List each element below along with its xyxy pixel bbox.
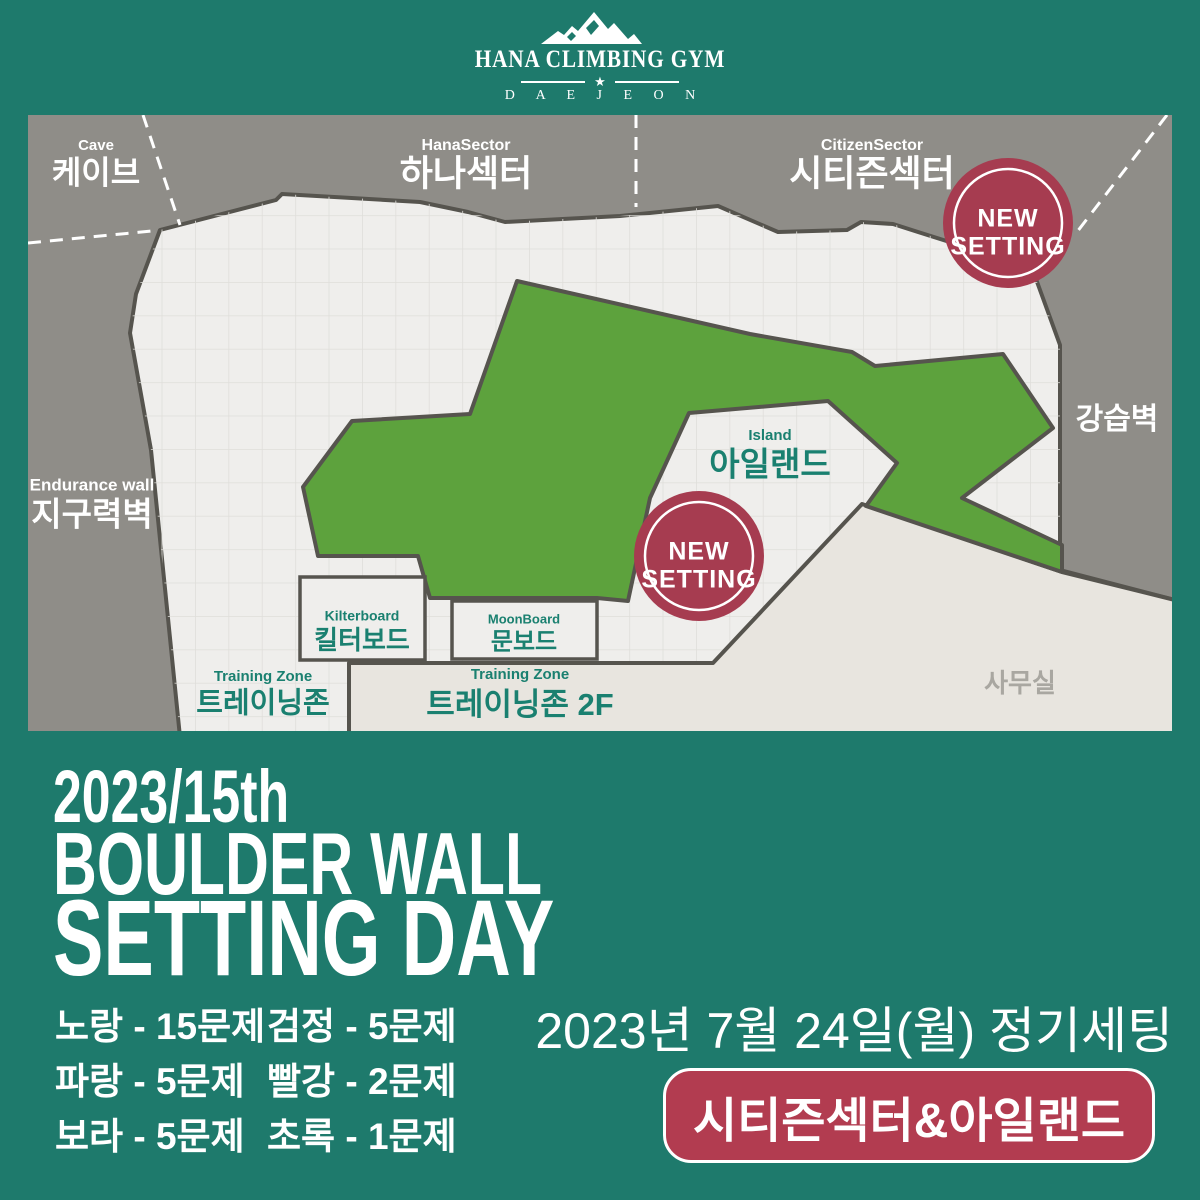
problem-count-purple: 보라 - 5문제	[55, 1109, 267, 1164]
moonboard-label-kr: 문보드	[491, 628, 557, 655]
endurance-wall-label-kr: 지구력벽	[31, 496, 152, 533]
gym-name: HANA CLIMBING GYM	[90, 46, 1110, 74]
logo-divider: ★	[0, 77, 1200, 87]
new-setting-badge-citizen: NEW SETTING	[943, 158, 1073, 288]
new-setting-badge-island: NEW SETTING	[634, 491, 764, 621]
citizen-sector-label-kr: 시티즌섹터	[789, 153, 955, 194]
lecture-wall-label: 강습벽	[1076, 403, 1159, 436]
new-setting-badge-citizen-line1: NEW	[977, 205, 1038, 233]
divider-line-right	[615, 81, 679, 83]
problem-count-red: 빨강 - 2문제	[267, 1054, 457, 1109]
cave-label-en: Cave	[78, 137, 114, 154]
kilterboard-label-kr: 킬터보드	[314, 625, 410, 655]
training-zone-label-kr: 트레이닝존	[196, 687, 329, 720]
gym-city: D A E J E O N	[0, 88, 1200, 104]
island-label-en: Island	[748, 427, 791, 444]
mountain-icon	[541, 8, 659, 44]
setting-date: 2023년 7월 24일(월) 정기세팅	[535, 1003, 1173, 1059]
office-label: 사무실	[984, 668, 1056, 698]
island-label-kr: 아일랜드	[709, 446, 830, 483]
moonboard-label-en: MoonBoard	[488, 611, 560, 626]
gym-floor-map: Cave 케이브 HanaSector 하나섹터 CitizenSector 시…	[28, 115, 1172, 731]
new-setting-badge-island-line2: SETTING	[641, 566, 756, 594]
problem-count-blue: 파랑 - 5문제	[55, 1054, 267, 1109]
problem-count-list: 노랑 - 15문제 검정 - 5문제 파랑 - 5문제 빨강 - 2문제 보라 …	[55, 999, 457, 1164]
gym-logo: HANA CLIMBING GYM ★ D A E J E O N	[0, 8, 1200, 104]
setting-target-label: 시티즌섹터&아일랜드	[693, 1081, 1125, 1151]
title-setting-day: SETTING DAY	[53, 884, 554, 992]
divider-line-left	[521, 81, 585, 83]
training-zone-2f-label-kr: 트레이닝존 2F	[426, 687, 613, 722]
problem-count-green: 초록 - 1문제	[267, 1109, 457, 1164]
problem-count-yellow: 노랑 - 15문제	[55, 999, 267, 1054]
endurance-wall-label-en: Endurance wall	[30, 475, 155, 494]
training-zone-label-en: Training Zone	[214, 668, 312, 685]
new-setting-badge-citizen-line2: SETTING	[950, 233, 1065, 261]
new-setting-badge-island-line1: NEW	[668, 538, 729, 566]
problem-count-black: 검정 - 5문제	[267, 999, 457, 1054]
hana-sector-label-kr: 하나섹터	[400, 153, 532, 194]
training-zone-2f-label-en: Training Zone	[471, 666, 569, 683]
setting-target-badge: 시티즌섹터&아일랜드	[663, 1068, 1155, 1163]
kilterboard-label-en: Kilterboard	[325, 608, 400, 624]
cave-label-kr: 케이브	[52, 154, 140, 190]
star-icon: ★	[594, 77, 606, 87]
